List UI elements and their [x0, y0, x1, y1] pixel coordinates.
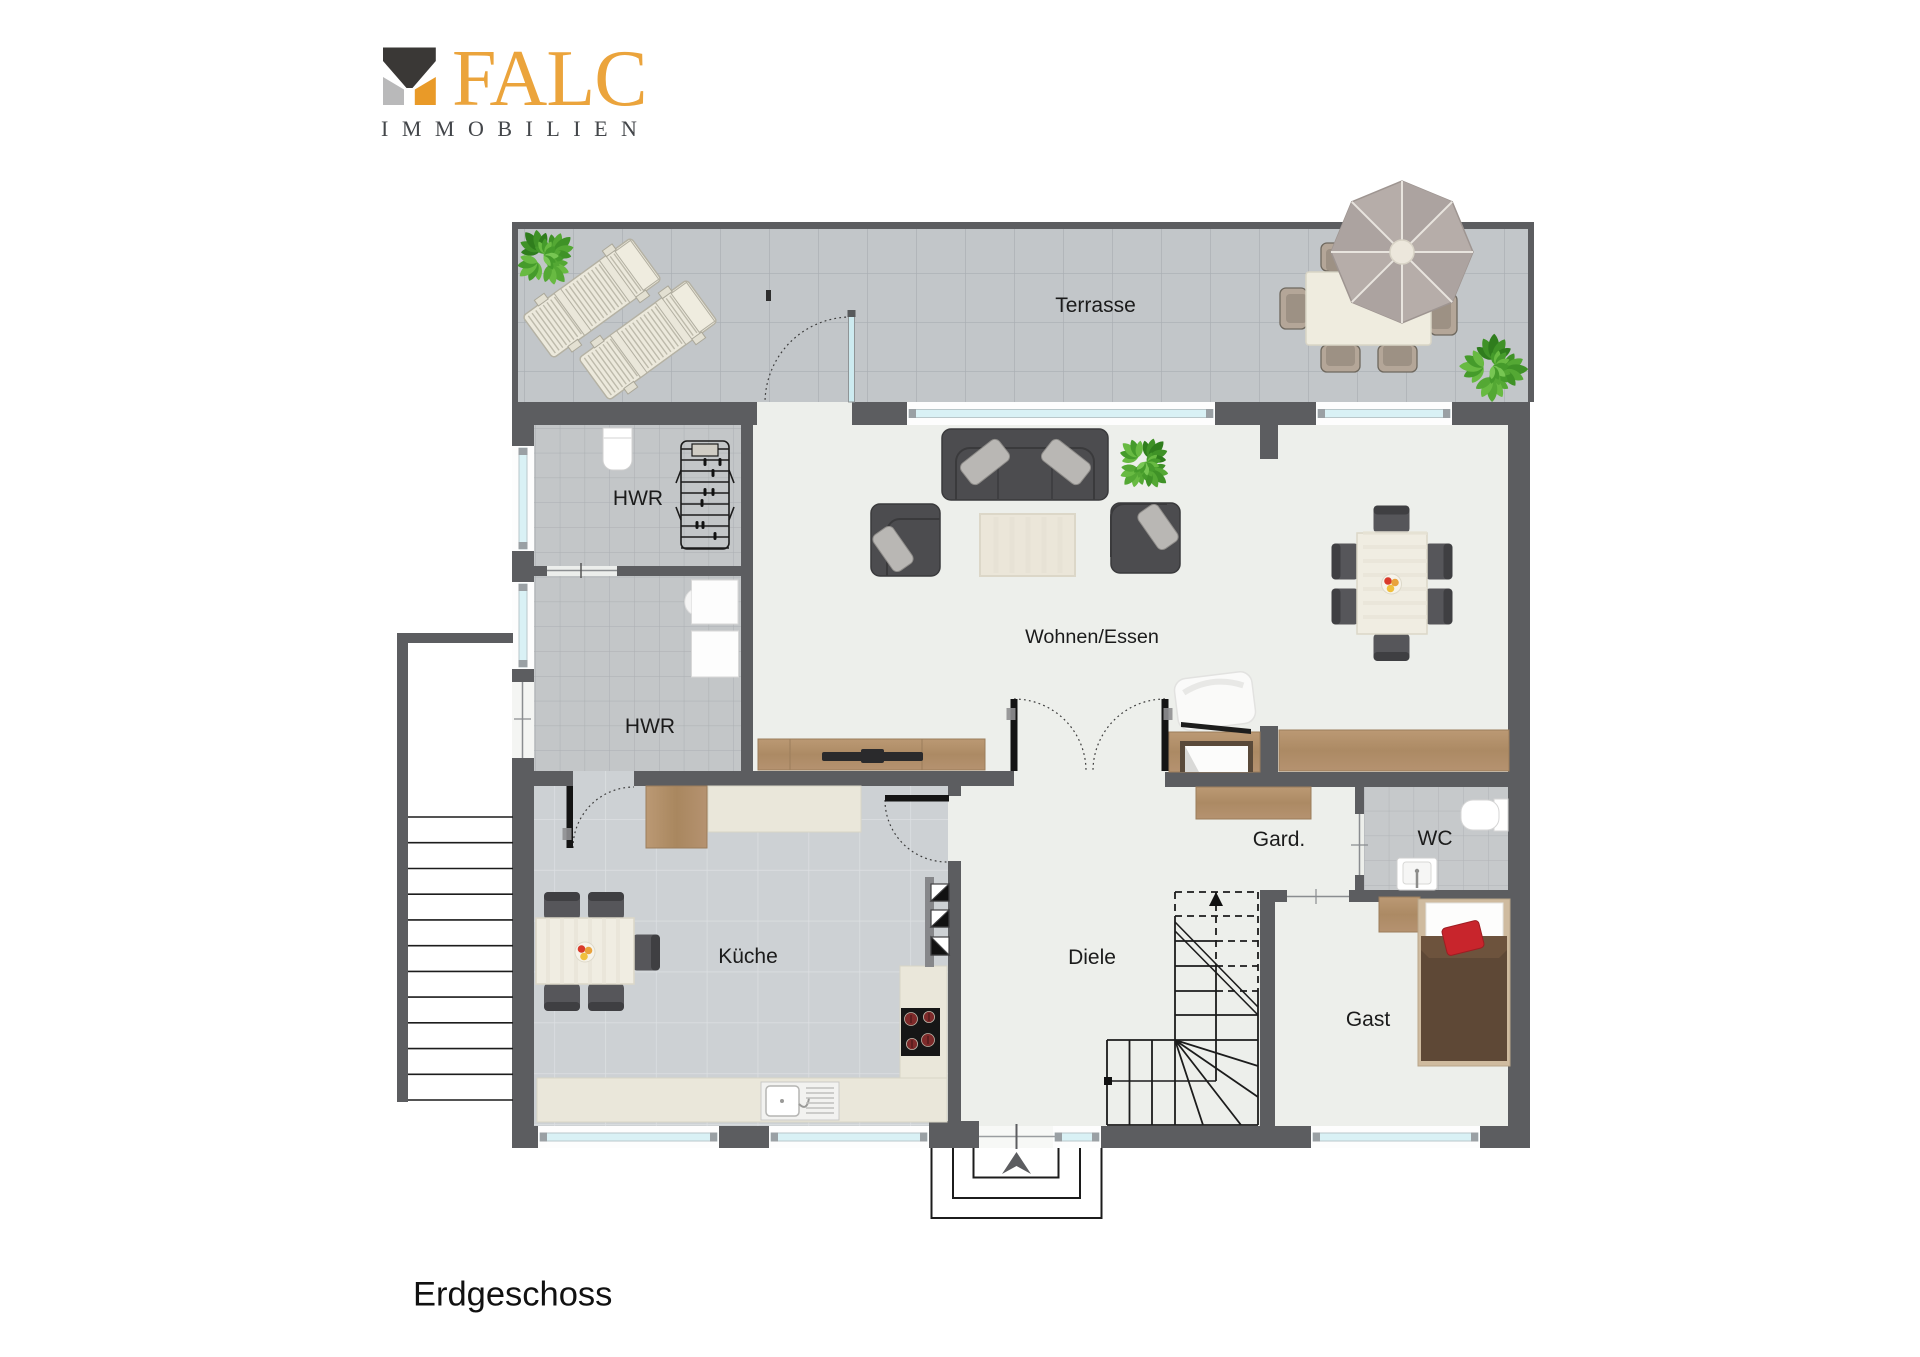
svg-text:Gast: Gast — [1346, 1008, 1391, 1031]
svg-text:FALC: FALC — [452, 35, 647, 123]
svg-text:HWR: HWR — [613, 487, 663, 510]
svg-text:WC: WC — [1418, 827, 1453, 850]
svg-text:Küche: Küche — [718, 945, 778, 968]
svg-text:Gard.: Gard. — [1253, 828, 1306, 851]
svg-text:Terrasse: Terrasse — [1055, 294, 1136, 317]
svg-text:Erdgeschoss: Erdgeschoss — [413, 1276, 612, 1314]
svg-text:Diele: Diele — [1068, 946, 1116, 969]
svg-text:IMMOBILIEN: IMMOBILIEN — [381, 116, 650, 141]
svg-text:Wohnen/Essen: Wohnen/Essen — [1025, 626, 1159, 648]
svg-text:HWR: HWR — [625, 715, 675, 738]
